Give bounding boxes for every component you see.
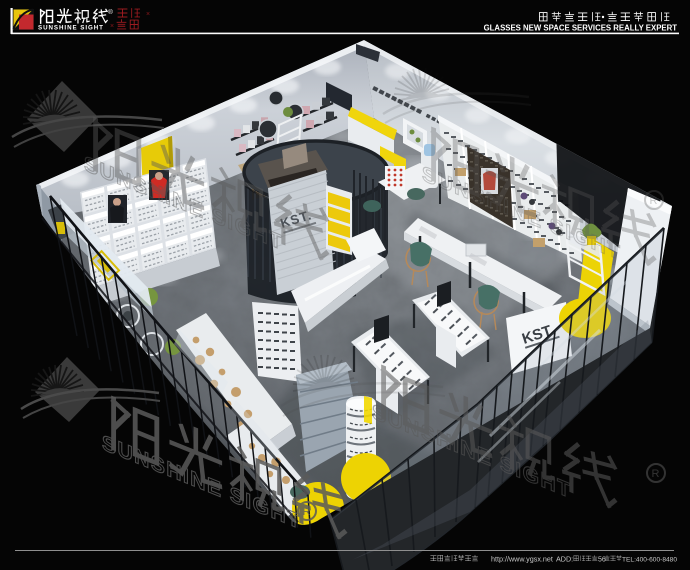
- svg-text:×: ×: [146, 11, 150, 18]
- svg-text:R: R: [303, 506, 311, 518]
- svg-text:R: R: [652, 468, 660, 480]
- svg-text:SUNSHINE SIGHT: SUNSHINE SIGHT: [38, 25, 104, 32]
- svg-text:TEL:400-600-8480: TEL:400-600-8480: [622, 557, 677, 564]
- svg-text:http://www.ygsx.net: http://www.ygsx.net: [491, 555, 553, 564]
- svg-text:®: ®: [108, 8, 113, 16]
- svg-text:R: R: [650, 195, 658, 207]
- svg-text:×: ×: [110, 23, 114, 30]
- svg-text:ADD:: ADD:: [556, 555, 573, 564]
- svg-text:56: 56: [598, 557, 606, 564]
- svg-text:GLASSES NEW SPACE SERVICES REA: GLASSES NEW SPACE SERVICES REALLY EXPERT: [484, 24, 678, 33]
